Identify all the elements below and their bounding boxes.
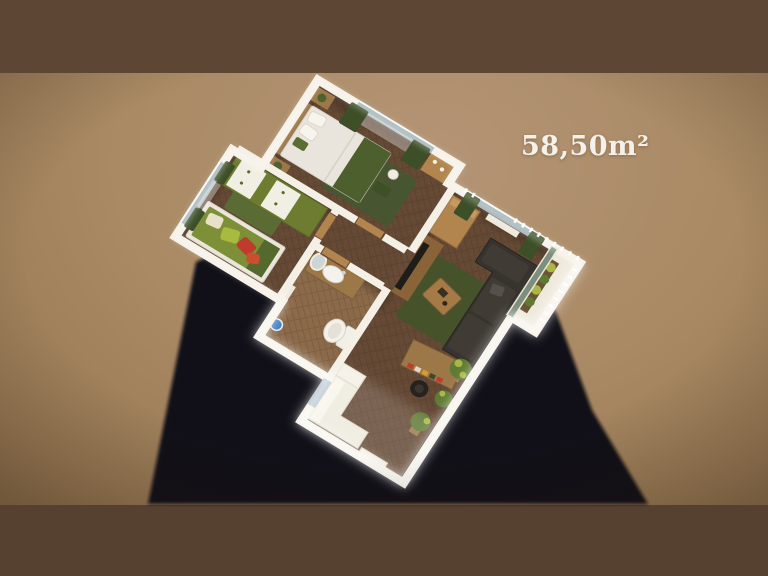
scene-svg [0,0,768,576]
vignette [0,73,768,505]
area-label: 58,50m² [521,131,649,162]
band-bottom [0,505,768,576]
floor-plan-render: 58,50m² [0,0,768,576]
band-top [0,0,768,73]
